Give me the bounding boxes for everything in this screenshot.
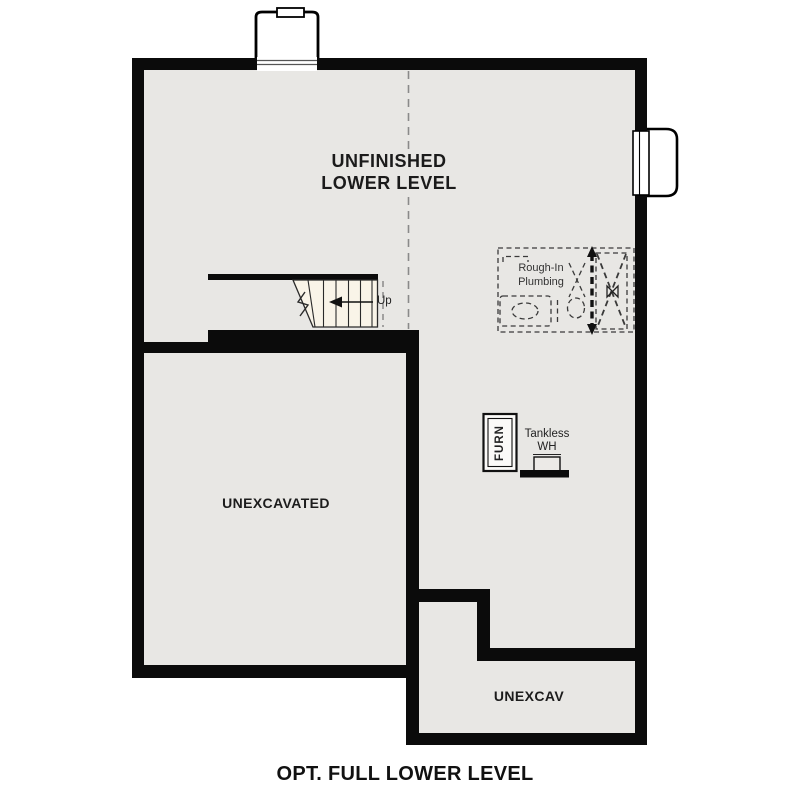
tankless-wh-label: Tankless WH — [518, 428, 576, 455]
room-label-unexcav: UNEXCAV — [429, 688, 629, 704]
window-well — [633, 129, 677, 196]
floor-plan: UNFINISHED LOWER LEVEL Up Rough-In Plumb… — [0, 0, 810, 810]
chimney-vent-icon — [277, 8, 304, 17]
room-label-unfinished-lower-level: UNFINISHED LOWER LEVEL — [284, 150, 494, 194]
fireplace-chimney — [256, 8, 318, 71]
stairs-up-label: Up — [377, 295, 392, 307]
plan-title: OPT. FULL LOWER LEVEL — [155, 763, 655, 786]
furnace-label: FURN — [493, 418, 507, 468]
room-label-unexcavated: UNEXCAVATED — [176, 495, 376, 511]
rough-in-plumbing-label: Rough-In Plumbing — [506, 262, 576, 289]
floor-plan-drawing — [0, 0, 810, 810]
window-icon — [633, 131, 649, 195]
